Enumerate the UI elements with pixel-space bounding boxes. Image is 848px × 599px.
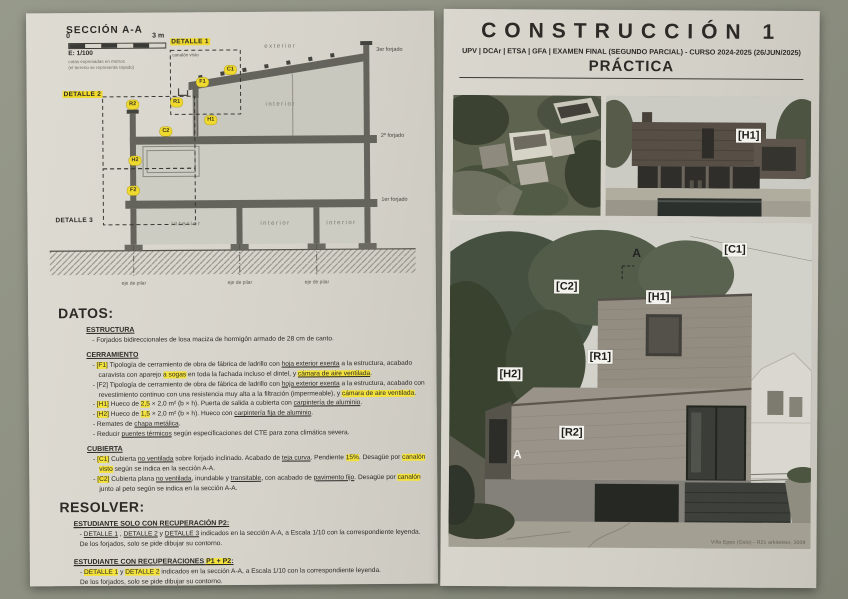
tag-f1: F1 <box>196 78 208 87</box>
datos-heading: DATOS: <box>58 303 430 322</box>
photographed-exam-sheet: SECCIÓN A-A 0 3 m E: 1/100 cotas expresa… <box>0 0 848 599</box>
axis-label: eje de pilar <box>122 281 147 287</box>
scale-note-1: cotas expresadas en metros <box>68 59 125 65</box>
detalle-2-label: DETALLE 2 <box>63 91 103 98</box>
resolver-group1-title: ESTUDIANTE SOLO CON RECUPERACIÓN P2: <box>74 519 432 528</box>
exam-page-right: CONSTRUCCIÓN 1 UPV | DCAr | ETSA | GFA |… <box>440 9 820 588</box>
datos-section: DATOS: ESTRUCTURA - Forjados bidireccion… <box>58 303 431 495</box>
cerramiento-line: - [F1] Tipología de cerramiento de obra … <box>92 359 430 381</box>
photo-label-c1: [C1] <box>722 243 747 257</box>
scale-end-label: 3 m <box>152 32 164 39</box>
exam-subtitle: UPV | DCAr | ETSA | GFA | EXAMEN FINAL (… <box>447 46 815 57</box>
resolver-line: De los forjados, solo se pide dibujar su… <box>80 575 432 587</box>
tag-h2: H2 <box>129 156 141 165</box>
canalon-note: canalón visto <box>172 52 206 58</box>
room-label: interior <box>171 221 201 227</box>
cerramiento-subhead: CERRAMIENTO <box>86 350 430 359</box>
resolver-group2-title: ESTUDIANTE CON RECUPERACIONES P1 + P2: <box>74 556 432 565</box>
resolver-heading: RESOLVER: <box>59 497 431 516</box>
photo-label-r1: [R1] <box>588 350 613 364</box>
floor-label-3: 3er forjado <box>376 47 402 53</box>
detalle-1-label: DETALLE 1 <box>170 38 210 45</box>
tag-h1: H1 <box>205 116 217 125</box>
header-rule <box>459 77 803 80</box>
aerial-photo <box>453 95 602 216</box>
main-photo: [C1]A[C2][H1][R1][H2][R2]A Villa Eppe (O… <box>448 221 812 549</box>
exam-subject: PRÁCTICA <box>443 57 819 76</box>
photo-label-h1: [H1] <box>736 129 761 143</box>
resolver-line: De los forjados, solo se pide dibujar su… <box>80 538 432 550</box>
tag-f2: F2 <box>127 186 139 195</box>
exam-page-left: SECCIÓN A-A 0 3 m E: 1/100 cotas expresa… <box>26 11 438 587</box>
scale-ratio: E: 1/100 <box>68 50 93 57</box>
aerial-photo-art <box>453 95 602 216</box>
estructura-subhead: ESTRUCTURA <box>86 325 430 334</box>
section-drawing: SECCIÓN A-A 0 3 m E: 1/100 cotas expresa… <box>30 17 432 304</box>
cerramiento-line: - Reducir puentes térmicos según especif… <box>93 428 431 440</box>
estructura-line: - Forjados bidireccionales de losa maciz… <box>92 334 430 346</box>
section-mark-a-bottom: A <box>511 447 524 461</box>
room-label: interior <box>265 102 295 108</box>
exterior-label: exterior <box>264 44 296 50</box>
cubierta-line: - [C2] Cubierta plana no ventilada, inun… <box>93 472 431 494</box>
tag-c2: C2 <box>160 127 172 136</box>
photo-label-h1: [H1] <box>646 290 671 304</box>
floor-label-2: 2º forjado <box>381 133 404 139</box>
cubierta-subhead: CUBIERTA <box>87 444 431 453</box>
photo-label-h2: [H2] <box>497 367 522 381</box>
drawing-title: SECCIÓN A-A <box>66 25 143 37</box>
resolver-section: RESOLVER: ESTUDIANTE SOLO CON RECUPERACI… <box>59 497 432 588</box>
room-label: interior <box>260 221 290 227</box>
tag-r1: R1 <box>171 98 183 107</box>
photo-label-r2: [R2] <box>559 426 584 440</box>
main-photo-art <box>448 221 812 549</box>
cubierta-line: - [C1] Cubierta no ventilada sobre forja… <box>93 453 431 475</box>
scale-zero-label: 0 <box>66 33 70 40</box>
axis-label: eje de pilar <box>305 279 330 285</box>
section-mark-a-top: A <box>630 246 643 260</box>
scale-note-2: (el terreno se representa rayado) <box>68 65 134 71</box>
detalle-3-label: DETALLE 3 <box>55 217 93 224</box>
house-photo: [H1] <box>606 96 812 217</box>
floor-label-1: 1er forjado <box>381 197 407 203</box>
room-label: interior <box>326 220 356 226</box>
course-title: CONSTRUCCIÓN 1 <box>444 19 820 45</box>
cerramiento-line: - [F2] Tipología de cerramiento de obra … <box>93 378 431 400</box>
exam-header: CONSTRUCCIÓN 1 UPV | DCAr | ETSA | GFA |… <box>443 19 819 80</box>
photo-caption: Villa Eppe (Oslo) - R21 arkitekter, 2009 <box>711 539 806 546</box>
axis-label: eje de pilar <box>228 280 253 286</box>
graphic-scale-bar <box>68 42 166 49</box>
photo-label-c2: [C2] <box>554 280 579 294</box>
house-photo-art <box>606 96 812 217</box>
tag-r2: R2 <box>127 100 139 109</box>
tag-c1: C1 <box>224 65 236 74</box>
